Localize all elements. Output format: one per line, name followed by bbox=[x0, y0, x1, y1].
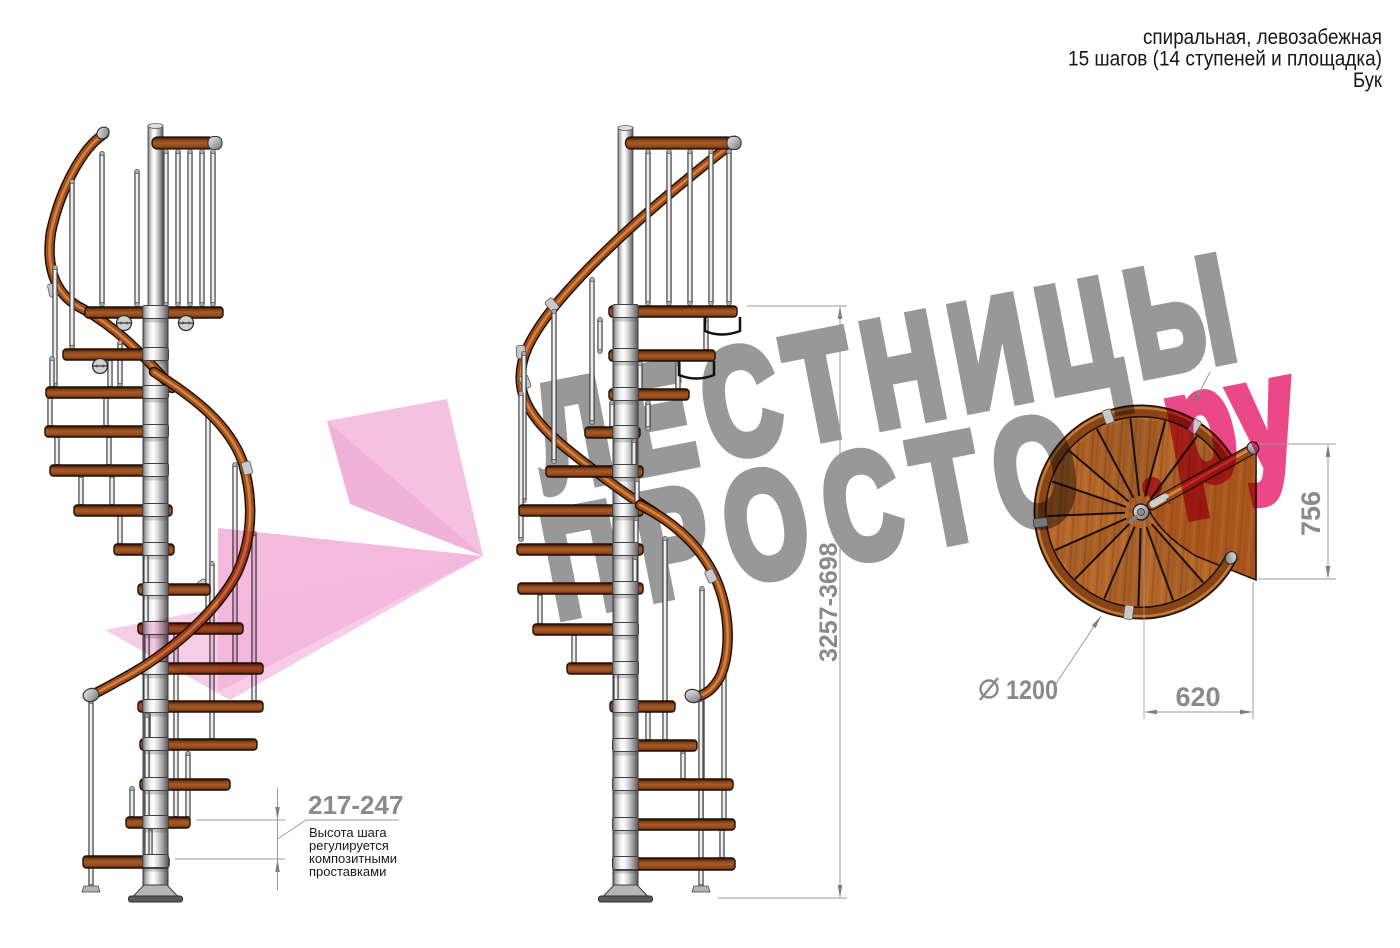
svg-text:Бук: Бук bbox=[1353, 68, 1383, 92]
svg-text:проставками: проставками bbox=[309, 864, 386, 879]
svg-text:15 шагов (14 ступеней и площад: 15 шагов (14 ступеней и площадка) bbox=[1068, 47, 1382, 71]
svg-text:217-247: 217-247 bbox=[308, 790, 403, 820]
svg-text:спиральная, левозабежная: спиральная, левозабежная bbox=[1143, 25, 1382, 49]
svg-text:3257-3698: 3257-3698 bbox=[815, 542, 843, 662]
svg-text:620: 620 bbox=[1175, 682, 1220, 712]
svg-text:756: 756 bbox=[1296, 491, 1326, 536]
svg-text:1200: 1200 bbox=[1006, 675, 1058, 705]
